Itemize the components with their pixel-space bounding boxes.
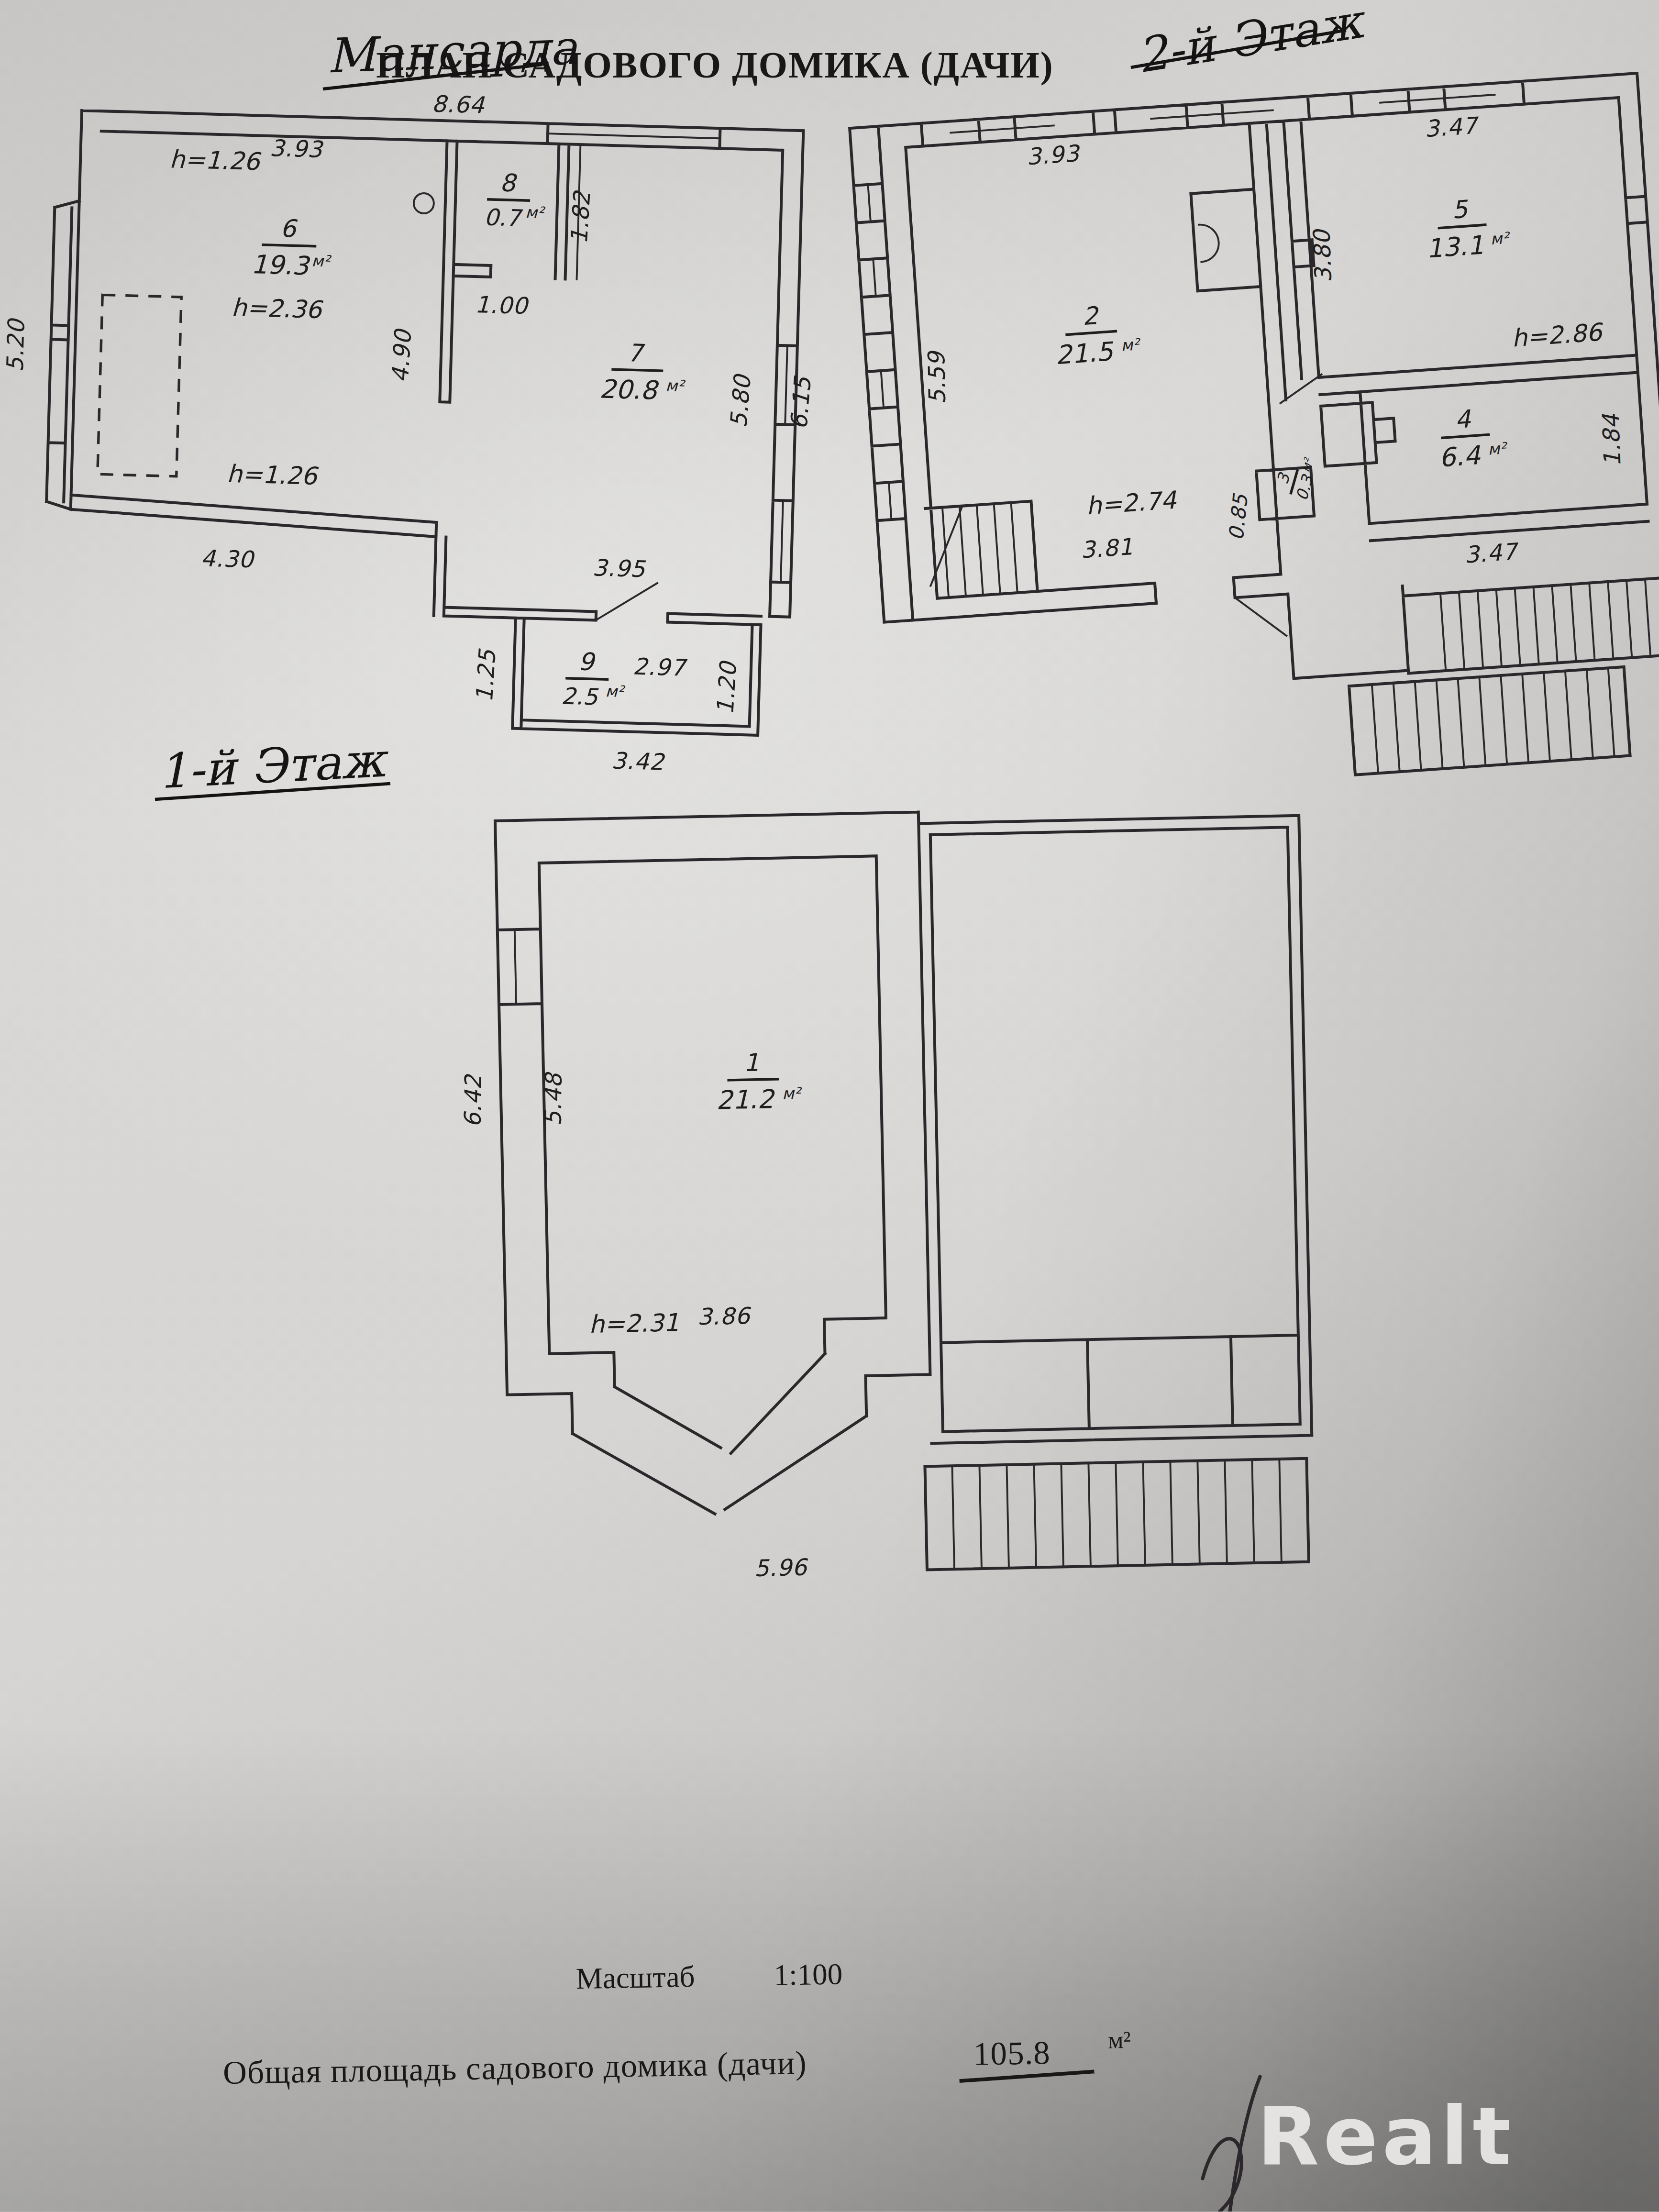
room-area: 0.7 (484, 204, 523, 232)
room-label-7: 7 20.8 м² (599, 338, 687, 406)
room-number: 6 (280, 214, 298, 243)
dim-label: 4.90 (387, 328, 417, 383)
dim-label: 1.82 (565, 189, 596, 244)
floor1-label-group: 1-й Этаж (155, 732, 390, 799)
room-fraction-line (1438, 225, 1487, 228)
height-label: h=1.26 (226, 460, 319, 490)
dim-label: 1.20 (711, 660, 741, 715)
room-area-unit: м² (665, 376, 686, 395)
header: План садового домика (дачи) Мансарда 2-й… (323, 0, 1370, 89)
dim-label: 6.15 (785, 375, 816, 430)
room-area: 20.8 (599, 374, 660, 405)
dim-label: 8.64 (431, 90, 486, 118)
room-label-8: 8 0.7 м² (484, 168, 547, 232)
room-number: 4 (1454, 405, 1472, 434)
room-number: 8 (499, 168, 518, 197)
room-number: 7 (627, 339, 646, 367)
dim-label: 5.80 (725, 373, 756, 429)
room-area: 19.3 (251, 249, 311, 281)
room-area-unit: м² (782, 1084, 803, 1103)
room-number: 9 (578, 647, 596, 676)
room-area: 6.4 (1438, 440, 1482, 473)
dim-label: 5.96 (754, 1554, 808, 1582)
dim-label: 1.84 (1597, 413, 1626, 467)
dim-label: 3.47 (1463, 538, 1520, 568)
room-label-1: 1 21.2 м² (715, 1048, 803, 1116)
attic-walls-path (41, 110, 804, 736)
total-area-label: Общая площадь садового домика (дачи) (222, 2045, 807, 2091)
room-area: 2.5 (561, 682, 599, 710)
scale-value: 1:100 (774, 1957, 843, 1991)
room-area-unit: м² (1490, 228, 1511, 248)
floor1-thin-lines-path (515, 914, 1282, 1578)
room-label-4: 4 6.4 м² (1436, 402, 1509, 473)
dim-label: 1.25 (471, 648, 501, 703)
dim-label: 3.93 (269, 134, 324, 163)
room-label-9: 9 2.5 м² (561, 647, 627, 711)
height-label: h=2.86 (1511, 318, 1604, 352)
dim-label: 3.95 (592, 554, 647, 582)
room-fraction-line (487, 199, 530, 201)
footer: Масштаб 1:100 Общая площадь садового дом… (221, 1952, 1131, 2094)
room-label-3: 3 0.3 м² (1270, 450, 1322, 503)
scale-label: Масштаб (575, 1960, 695, 1995)
room-area-unit: м² (1487, 439, 1509, 459)
room-fraction-line (727, 1079, 779, 1080)
attic-plan: h=1.26 3.93 8.64 5.20 6 19.3 м² h=2.36 8… (0, 78, 824, 779)
floor1-label: 1-й Этаж (156, 732, 390, 799)
attic-pipe-circle (413, 193, 434, 213)
room-label-2: 2 21.5 м² (1052, 299, 1142, 370)
floor-plan-drawing: План садового домика (дачи) Мансарда 2-й… (0, 0, 1659, 2212)
room-fraction-line (565, 678, 608, 680)
total-area-unit: м² (1108, 2026, 1131, 2054)
dim-label: 3.42 (611, 747, 666, 775)
dim-label: 3.81 (1080, 533, 1134, 564)
room-area-unit: м² (525, 203, 546, 222)
dim-label: 5.20 (1, 318, 30, 373)
room-area: 13.1 (1425, 230, 1484, 264)
dim-label: 3.47 (1424, 111, 1481, 142)
height-label: h=1.26 (169, 145, 262, 176)
room-area: 21.2 (716, 1084, 776, 1116)
room-area-unit: м² (311, 252, 332, 271)
room-label-6: 6 19.3 м² (251, 213, 333, 282)
dim-label: 3.80 (1308, 228, 1337, 283)
photographed-floor-plan-page: План садового домика (дачи) Мансарда 2-й… (0, 0, 1659, 2212)
floor2-thin-lines-path (865, 85, 1659, 806)
dim-label: 6.42 (459, 1073, 487, 1128)
total-area-value: 105.8 (973, 2035, 1051, 2072)
dim-label: 2.97 (632, 653, 688, 681)
dim-label: 1.00 (475, 291, 530, 319)
dim-label: 4.30 (200, 544, 255, 573)
floor2-label: 2-й Этаж (1133, 0, 1370, 83)
room-fraction-line (611, 369, 663, 371)
dim-label: 5.48 (539, 1071, 567, 1126)
room-number: 3 (1273, 470, 1294, 486)
height-label: h=2.31 (588, 1308, 679, 1338)
room-number: 5 (1451, 195, 1470, 224)
attic-chimney-dashed (98, 295, 181, 476)
room-fraction-line (262, 245, 316, 246)
room-fraction-line (1065, 331, 1117, 335)
room-number: 1 (743, 1049, 760, 1077)
height-label: h=2.36 (231, 293, 324, 324)
dim-label: 3.93 (1026, 140, 1082, 170)
realt-watermark: Realt (1257, 2090, 1515, 2183)
dim-label: 3.86 (697, 1302, 752, 1330)
first-floor-plan: 6.42 5.48 1 21.2 м² h=2.31 3.86 5.96 (453, 804, 1315, 1588)
room-fraction-line (1441, 434, 1490, 438)
room-label-5: 5 13.1 м² (1423, 192, 1512, 264)
handwritten-signature (1203, 2077, 1260, 2212)
room-area: 21.5 (1054, 336, 1115, 370)
total-area-underline (959, 2071, 1094, 2081)
second-floor-plan: 3.93 5.59 2 21.5 м² 3 0.3 м² 0.85 3.47 5… (850, 73, 1659, 807)
room-number: 2 (1081, 301, 1100, 331)
floor2-walls-path (850, 73, 1659, 807)
room-area-unit: м² (1299, 455, 1316, 474)
height-label: h=2.74 (1085, 486, 1178, 520)
room-area-unit: м² (1120, 335, 1142, 355)
dim-label: 0.85 (1224, 492, 1252, 542)
room-area-unit: м² (605, 682, 626, 701)
dim-label: 5.59 (923, 350, 951, 405)
floor1-walls-path (495, 804, 1315, 1579)
